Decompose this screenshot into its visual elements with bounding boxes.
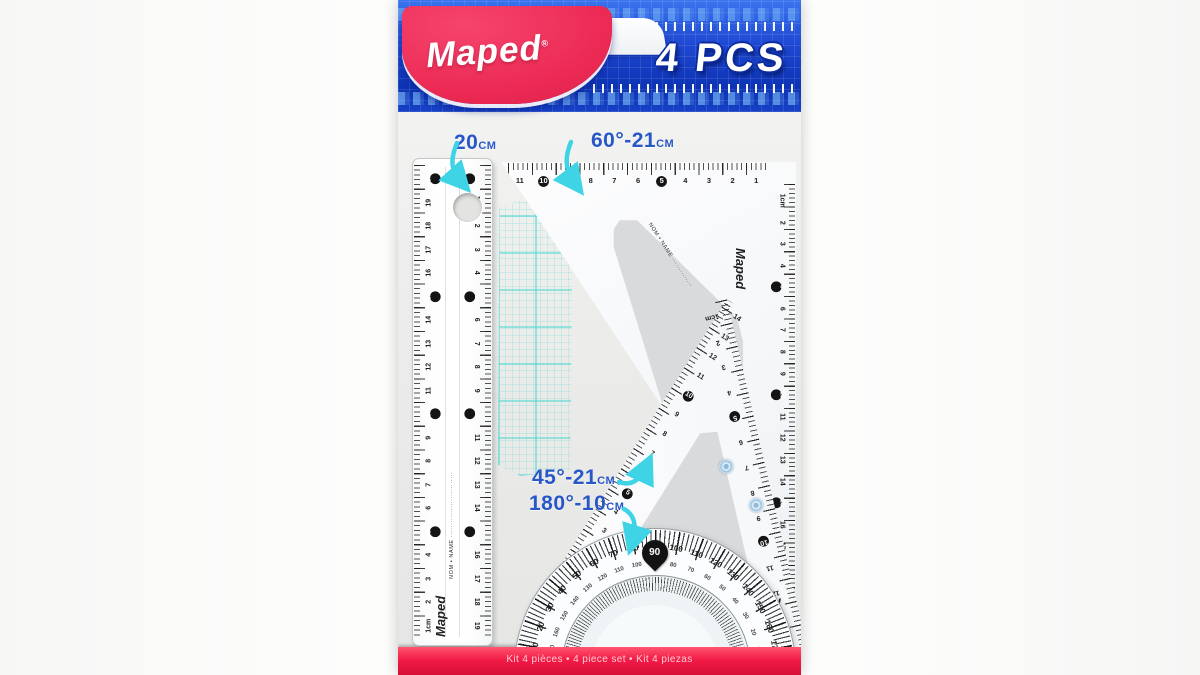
ruler-tick-decoration <box>593 84 797 93</box>
callout-protractor: 180°-10CM <box>529 492 624 516</box>
scale-number: 12 <box>458 451 482 471</box>
scale-number: 16 <box>423 263 447 283</box>
protractor-180: 1020304050607080100110120130140150160170… <box>514 528 796 647</box>
scale-number: 9 <box>555 175 579 188</box>
scale-number: 19 <box>423 192 447 212</box>
scale-number: 3 <box>697 175 721 188</box>
scale-number: 8 <box>423 451 447 471</box>
scale-number: 5 <box>650 175 674 188</box>
scale-number: 14 <box>423 310 447 330</box>
scale-number: 8 <box>579 175 603 188</box>
scale-number: 9 <box>458 380 482 400</box>
scale-number: 14 <box>458 498 482 518</box>
footer-text: Kit 4 pièces • 4 piece set • Kit 4 pieza… <box>398 647 801 673</box>
maped-logo: Maped® <box>402 6 612 104</box>
registered-mark: ® <box>541 38 549 49</box>
scale-number: 20 <box>423 169 447 189</box>
scale-number: 11 <box>508 175 532 188</box>
scale-number: 15 <box>458 521 482 541</box>
hanging-hole <box>453 193 482 222</box>
scale-number: 13 <box>423 333 447 353</box>
scale-number: 12 <box>423 357 447 377</box>
header-band: Maped® 4 PCS <box>398 0 801 112</box>
scale-number: 15 <box>423 286 447 306</box>
scale-number: 5 <box>423 521 447 541</box>
card-body: 1110987654321 1cm23456789101112131415161… <box>398 112 801 647</box>
scale-number: 3 <box>423 568 447 588</box>
product-photo: Maped® 4 PCS 1110987654321 1cm2345678910… <box>0 0 1200 675</box>
scale-number: 7 <box>603 175 627 188</box>
piece-count-badge: 4 PCS <box>654 36 789 81</box>
callout-ruler: 20CM <box>454 131 496 155</box>
scale-number: 1 <box>744 175 768 188</box>
callout-60: 60°-21CM <box>591 129 674 153</box>
scale-number: 4 <box>458 263 482 283</box>
scale-60-top: 1110987654321 <box>508 175 768 188</box>
scale-number: 18 <box>458 592 482 612</box>
scale-number: 6 <box>626 175 650 188</box>
packaging-card: Maped® 4 PCS 1110987654321 1cm2345678910… <box>398 0 801 675</box>
scale-number: 17 <box>423 239 447 259</box>
scale-number: 13 <box>458 474 482 494</box>
ruler-scale-right: 01cm2345678910111213141516171819 <box>459 167 480 637</box>
scale-number: 11 <box>423 380 447 400</box>
scale-number: 7 <box>458 333 482 353</box>
scale-number: 8 <box>458 357 482 377</box>
brand-name: Maped® <box>425 28 551 77</box>
scale-number: 19 <box>458 615 482 635</box>
tick-marks <box>508 163 768 175</box>
scale-number: 2 <box>721 175 745 188</box>
scale-number: 0 <box>458 169 482 189</box>
scale-number: 4 <box>673 175 697 188</box>
scale-number: 10 <box>532 175 556 188</box>
ruler-scale-left: 2019181716151413121110987654321cm <box>425 167 446 637</box>
scale-number: 7 <box>423 474 447 494</box>
scale-number: 4 <box>423 545 447 565</box>
scale-number: 11 <box>458 427 482 447</box>
scale-number: 10 <box>423 404 447 424</box>
scale-number: 17 <box>458 568 482 588</box>
name-line: NOM • NAME ··························· <box>449 472 455 579</box>
scale-number: 9 <box>423 427 447 447</box>
scale-number: 3 <box>458 239 482 259</box>
ruler-20cm: 2019181716151413121110987654321cm 01cm23… <box>412 158 493 646</box>
footer-bar: Kit 4 pièces • 4 piece set • Kit 4 pieza… <box>398 647 801 675</box>
tick-marks <box>480 165 491 639</box>
scale-number: 6 <box>423 498 447 518</box>
scale-number: 6 <box>458 310 482 330</box>
scale-number: 5 <box>458 286 482 306</box>
scale-number: 16 <box>458 545 482 565</box>
callout-45: 45°-21CM <box>532 466 615 490</box>
scale-number: 18 <box>423 216 447 236</box>
maped-logo: Maped <box>433 596 448 637</box>
scale-number: 10 <box>458 404 482 424</box>
